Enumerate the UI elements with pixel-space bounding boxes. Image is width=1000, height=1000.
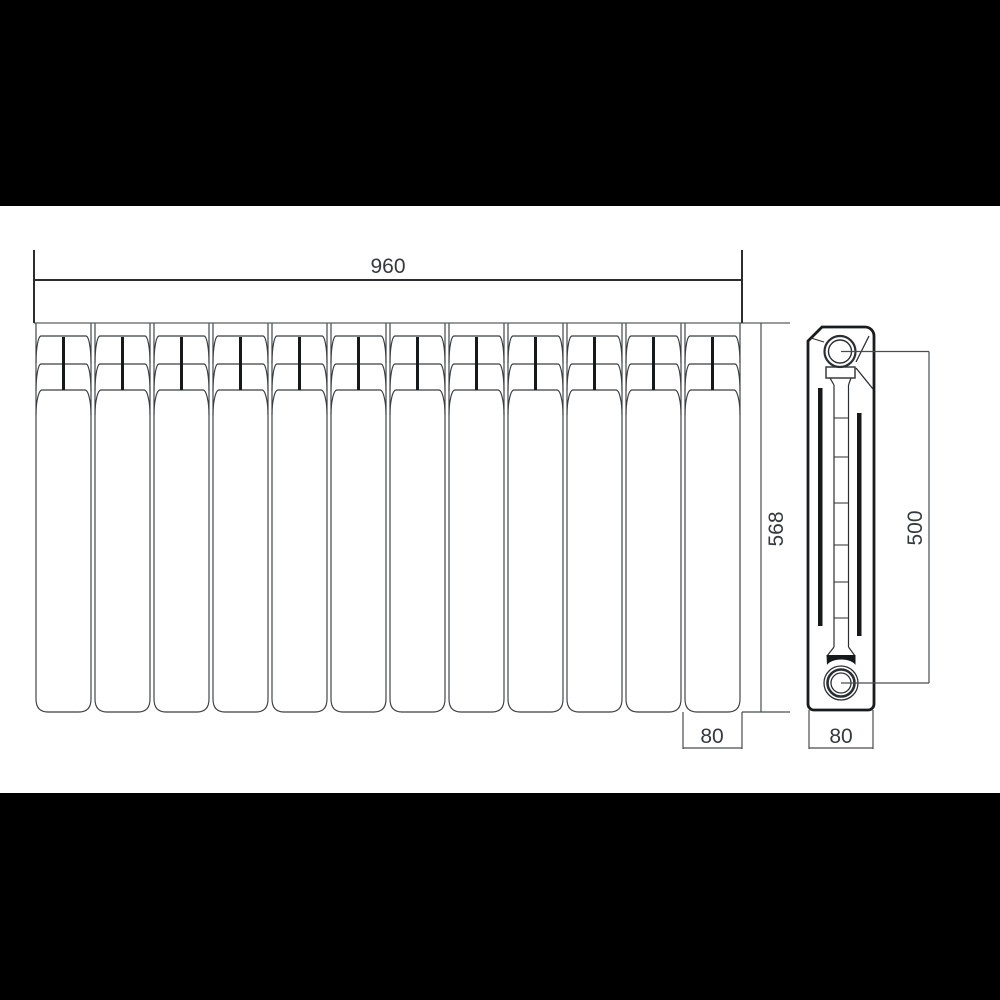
radiator-section — [95, 323, 150, 712]
section-convector-slot — [239, 337, 242, 390]
left-fin-bar — [818, 388, 823, 626]
radiator-section — [213, 323, 268, 712]
section-convector-slot — [180, 337, 183, 390]
dimension-depth: 80 — [809, 710, 873, 749]
radiator-section — [449, 323, 504, 712]
radiator-section — [390, 323, 445, 712]
section-convector-slot — [298, 337, 301, 390]
radiator-section — [567, 323, 622, 712]
radiator-section — [154, 323, 209, 712]
dimension-section-width: 80 — [683, 712, 742, 749]
front-view-sections — [36, 323, 740, 712]
radiator-technical-drawing: 960 568 500 80 80 — [0, 0, 1000, 1000]
section-convector-slot — [652, 337, 655, 390]
section-convector-slot — [711, 337, 714, 390]
section-convector-slot — [121, 337, 124, 390]
dimension-overall-width: 960 — [34, 250, 742, 323]
height-dimension-label: 568 — [765, 511, 788, 546]
letterbox-top-bar — [0, 0, 1000, 206]
axis-height-dimension-label: 500 — [904, 510, 927, 545]
section-convector-slot — [62, 337, 65, 390]
depth-dimension-label: 80 — [829, 725, 852, 748]
dimension-overall-height: 568 — [742, 323, 790, 712]
radiator-section — [508, 323, 563, 712]
front-view — [34, 323, 790, 712]
radiator-section — [272, 323, 327, 712]
width-dimension-label: 960 — [370, 255, 405, 278]
radiator-section — [626, 323, 681, 712]
section-convector-slot — [534, 337, 537, 390]
section-convector-slot — [593, 337, 596, 390]
letterbox-bottom-bar — [0, 793, 1000, 1000]
section-convector-slot — [357, 337, 360, 390]
section-width-dimension-label: 80 — [700, 725, 723, 748]
section-convector-slot — [475, 337, 478, 390]
radiator-section — [36, 323, 91, 712]
side-view-outline — [808, 327, 874, 710]
side-view — [808, 327, 874, 710]
radiator-section — [331, 323, 386, 712]
drawing-canvas: 960 568 500 80 80 — [0, 0, 1000, 1000]
right-fin-bar — [857, 413, 862, 636]
radiator-section — [685, 323, 740, 712]
section-convector-slot — [416, 337, 419, 390]
